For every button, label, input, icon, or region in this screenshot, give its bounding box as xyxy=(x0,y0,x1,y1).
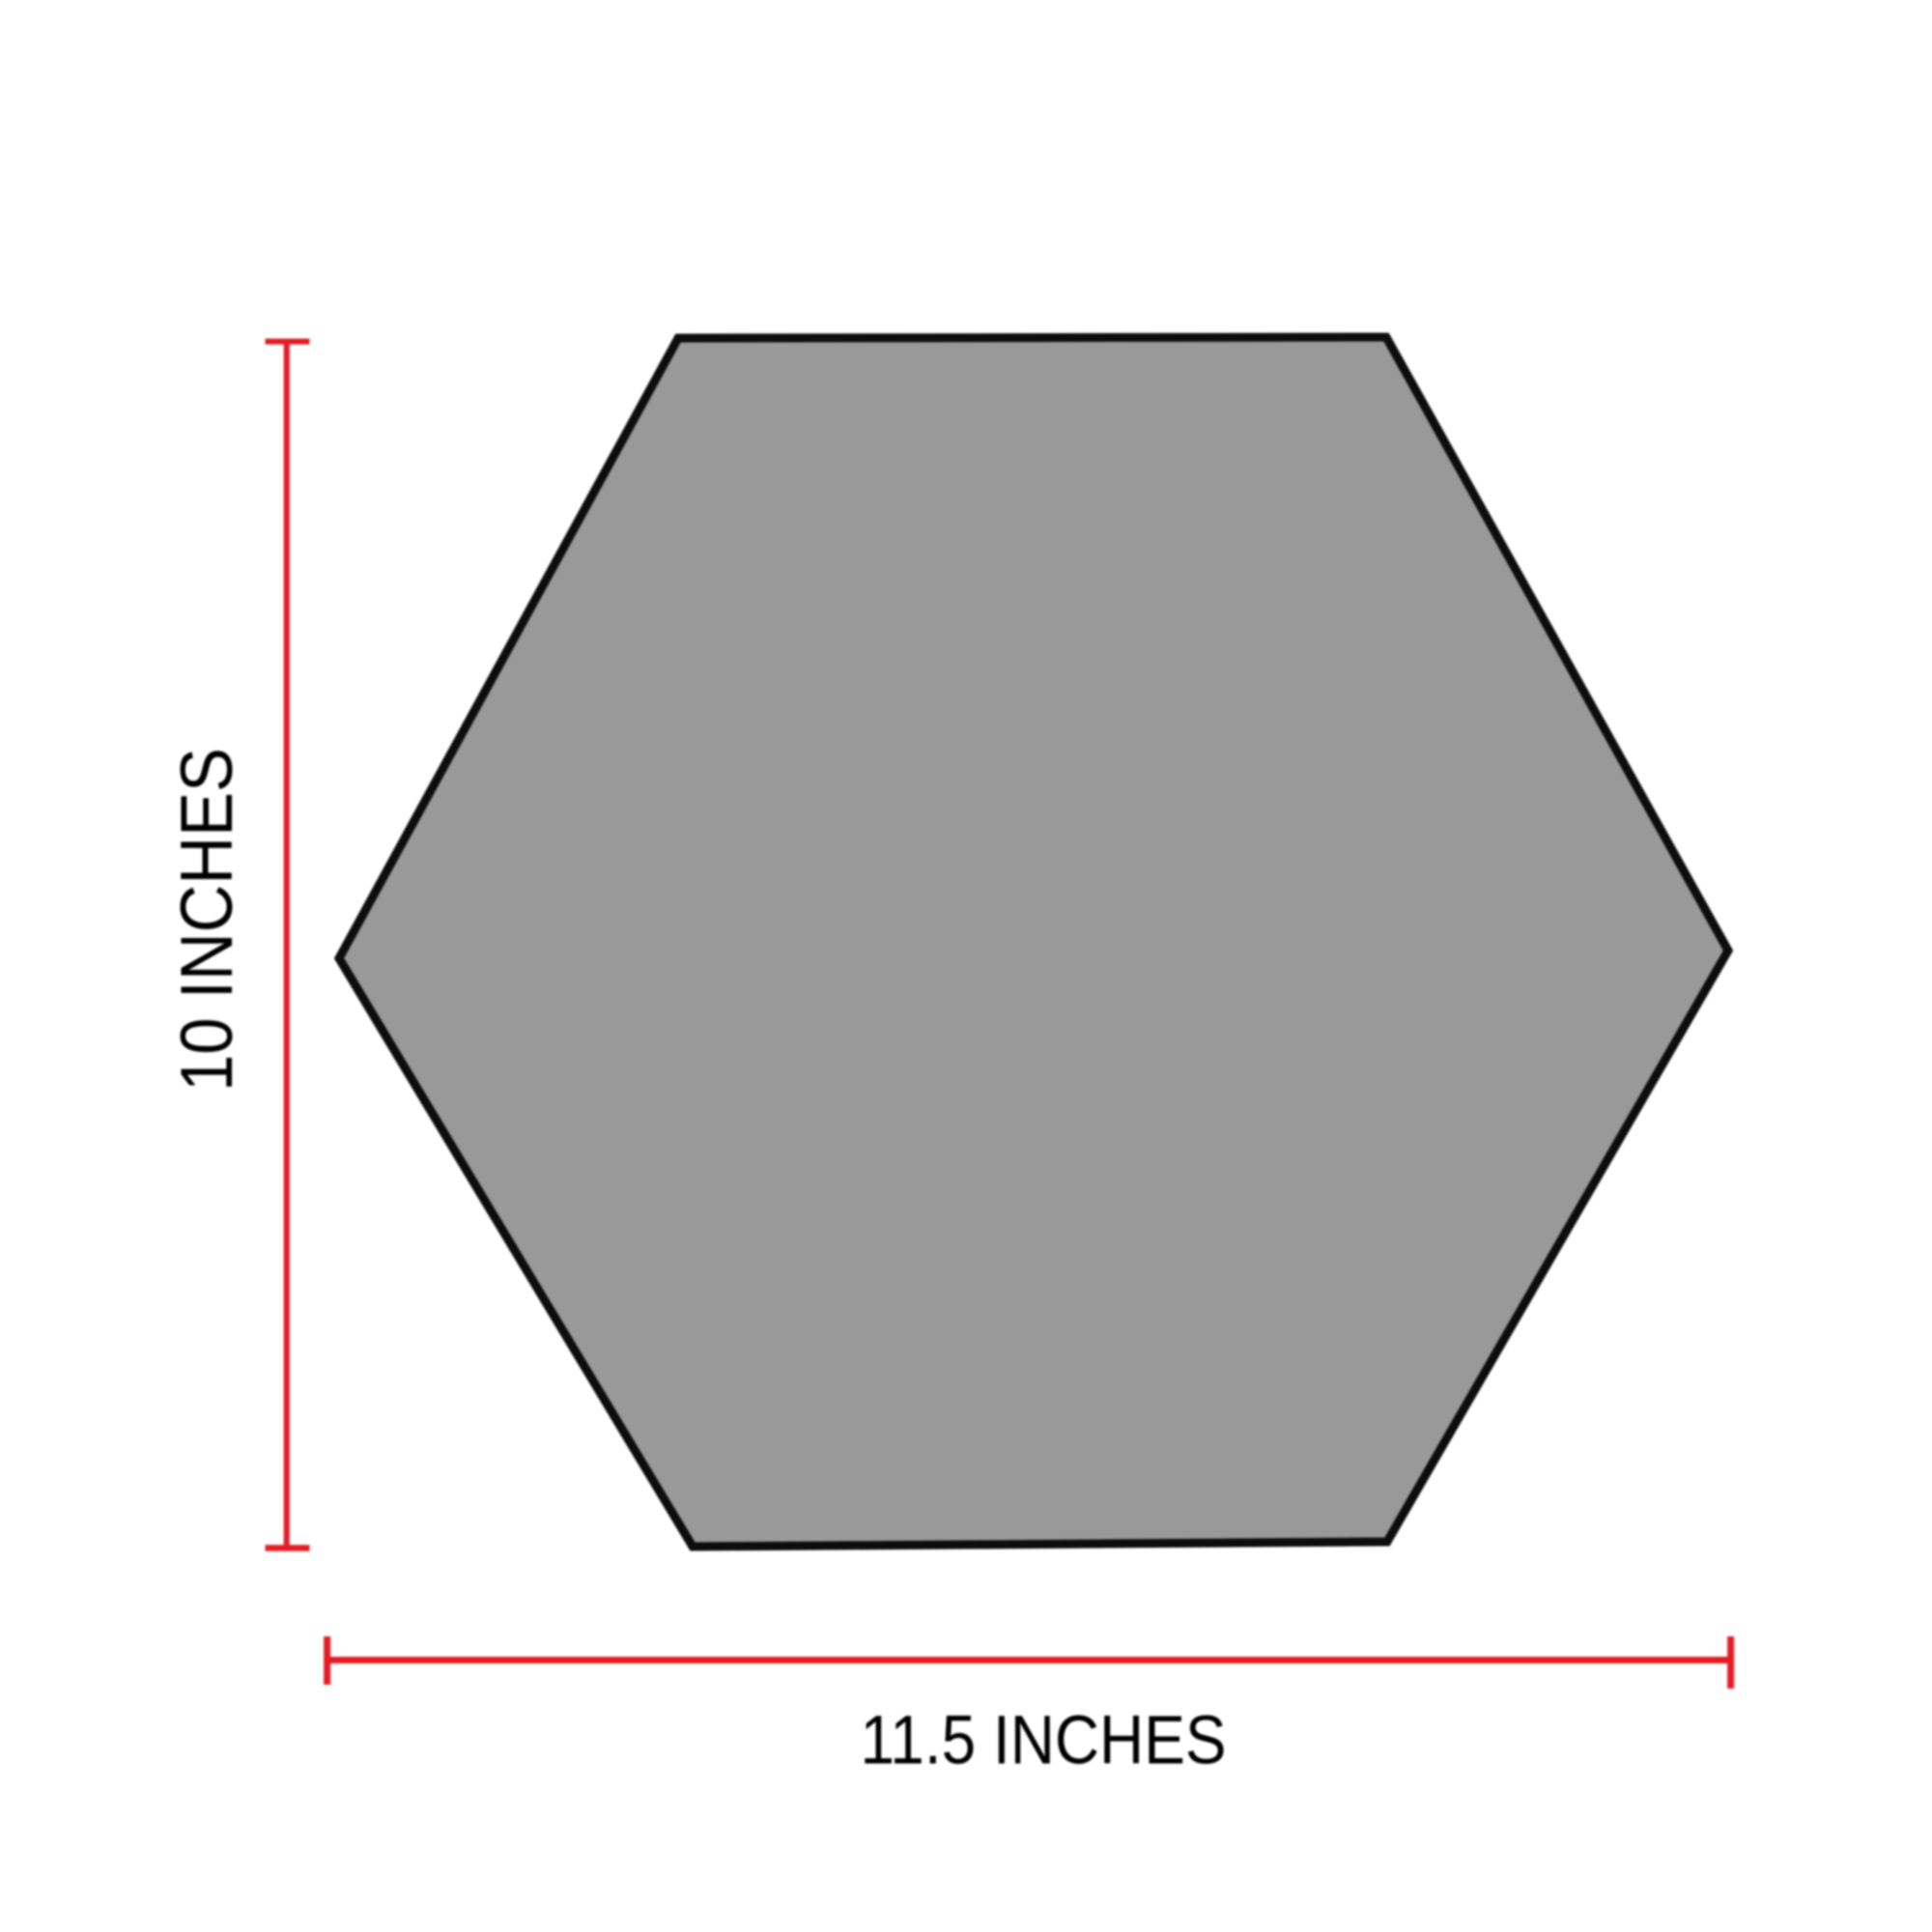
svg-text:11.5 INCHES: 11.5 INCHES xyxy=(861,1703,1227,1779)
svg-text:10 INCHES: 10 INCHES xyxy=(166,748,248,1092)
